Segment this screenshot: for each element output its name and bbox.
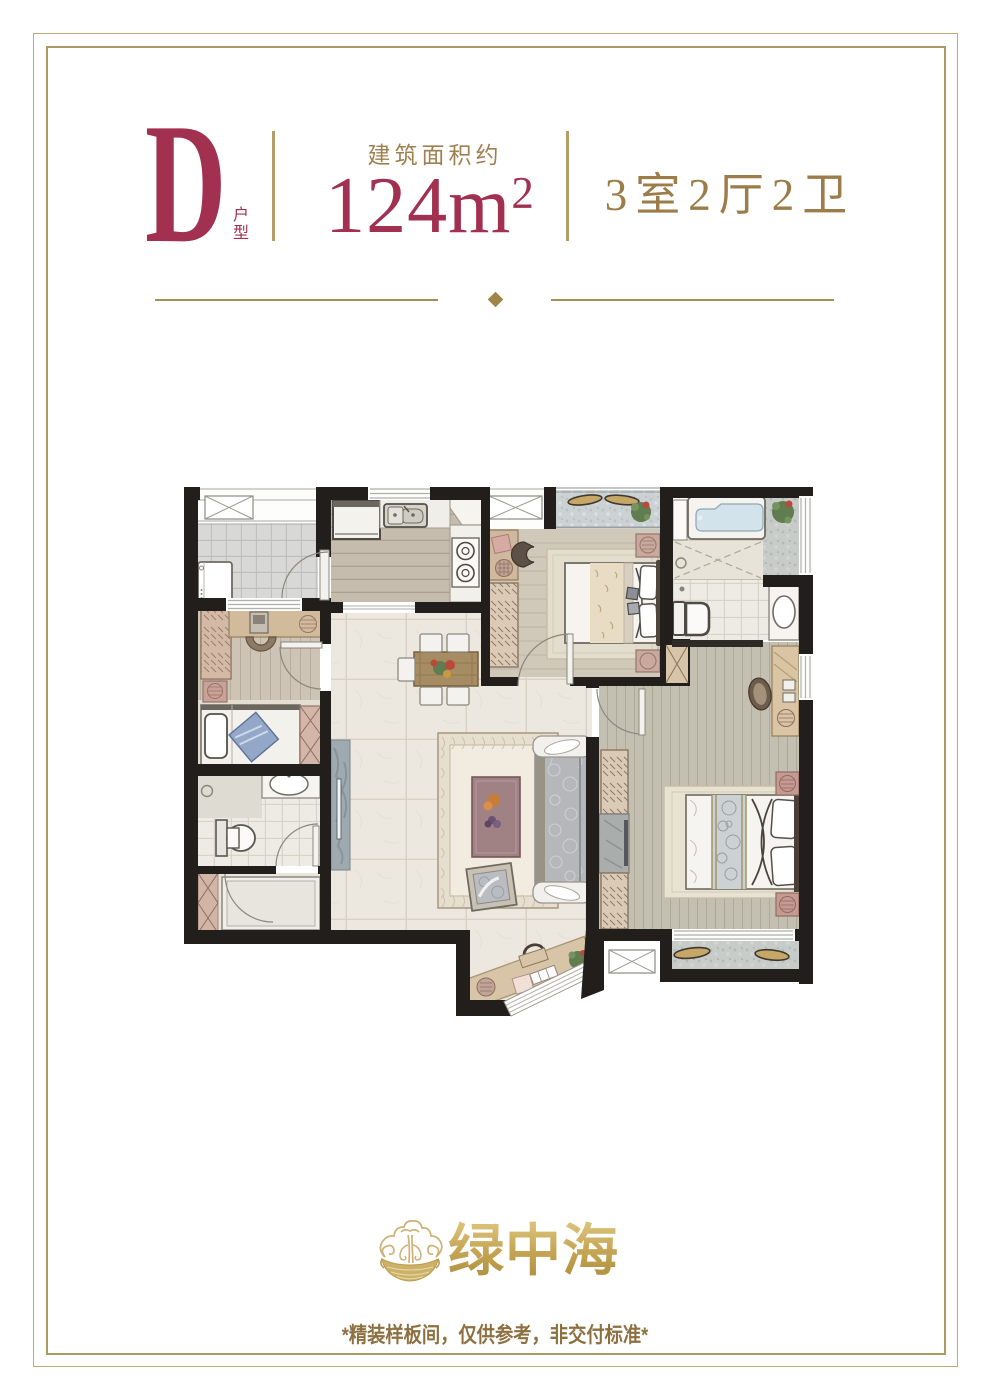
svg-text:绿中海: 绿中海 (448, 1221, 619, 1283)
